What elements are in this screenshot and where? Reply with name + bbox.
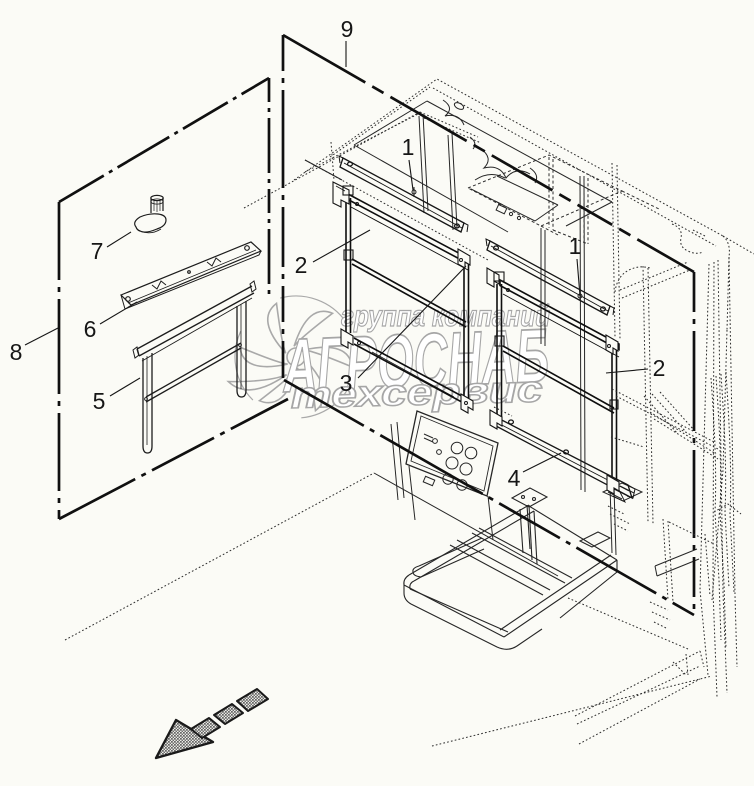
svg-text:4: 4 bbox=[508, 465, 521, 491]
svg-text:8: 8 bbox=[10, 339, 23, 365]
svg-text:9: 9 bbox=[341, 16, 354, 42]
svg-text:6: 6 bbox=[84, 316, 97, 342]
svg-text:техсервис: техсервис bbox=[290, 368, 543, 416]
svg-text:2: 2 bbox=[653, 355, 666, 381]
svg-text:2: 2 bbox=[295, 252, 308, 278]
svg-text:3: 3 bbox=[340, 370, 353, 396]
svg-text:1: 1 bbox=[569, 233, 582, 259]
svg-text:7: 7 bbox=[91, 238, 104, 264]
svg-text:5: 5 bbox=[93, 388, 106, 414]
svg-text:1: 1 bbox=[402, 134, 415, 160]
